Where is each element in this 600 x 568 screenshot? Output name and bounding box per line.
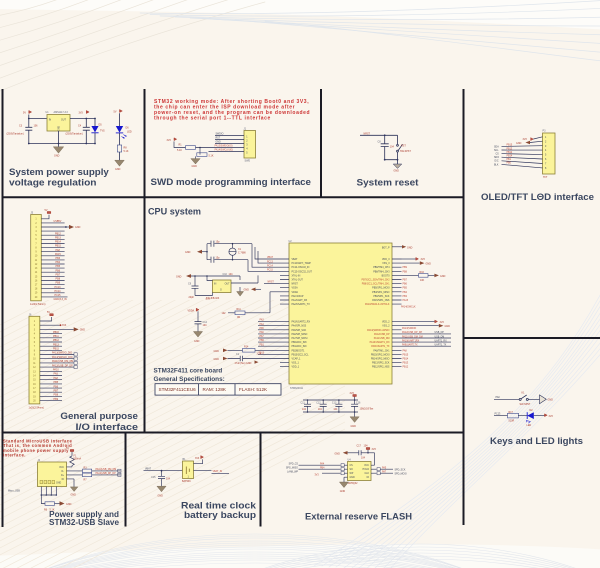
svg-text:510R: 510R (509, 419, 515, 422)
svg-text:PB2/BOOT1: PB2/BOOT1 (292, 350, 306, 352)
svg-text:15p: 15p (216, 256, 221, 259)
svg-text:D5: D5 (99, 124, 103, 127)
svg-text:PB8: PB8 (54, 394, 59, 397)
svg-text:PA14/SWCLK-JWTCLK: PA14/SWCLK-JWTCLK (365, 303, 390, 306)
svg-text:PB15: PB15 (55, 245, 62, 248)
svg-text:CS: CS (496, 154, 500, 156)
svg-text:PB14/SPI2_MISO: PB14/SPI2_MISO (371, 359, 390, 361)
svg-text:PA9: PA9 (54, 373, 59, 376)
svg-text:CS: CS (350, 465, 354, 467)
svg-text:J1: J1 (244, 128, 247, 131)
svg-text:LAN8_WP: LAN8_WP (287, 470, 298, 473)
svg-text:SPG_MISO: SPG_MISO (286, 467, 298, 469)
svg-text:PA5: PA5 (260, 327, 265, 330)
svg-text:PB9/TIM4_CH4: PB9/TIM4_CH4 (373, 267, 390, 269)
svg-text:BOOT0: BOOT0 (382, 275, 391, 277)
svg-text:PA13(SWDIO: PA13(SWDIO (402, 327, 416, 330)
svg-text:104: 104 (302, 408, 307, 411)
svg-text:5V: 5V (47, 311, 50, 314)
svg-text:GND: GND (216, 142, 221, 144)
svg-text:D6: D6 (126, 127, 130, 130)
svg-text:through the serial port 1--TTL: through the serial port 1--TTL interface (154, 116, 271, 122)
svg-text:PC13: PC13 (495, 413, 502, 415)
svg-text:GND: GND (214, 358, 220, 361)
svg-text:PB0: PB0 (507, 163, 512, 165)
svg-text:VCAP_1: VCAP_1 (292, 358, 302, 361)
svg-text:GND: GND (176, 276, 182, 279)
svg-text:20pF: 20pF (189, 296, 195, 299)
svg-text:GND: GND (185, 251, 191, 254)
svg-text:PA11(USB_DM_DM: PA11(USB_DM_DM (52, 360, 73, 363)
svg-text:GND: GND (75, 226, 81, 229)
svg-text:HOLD: HOLD (363, 469, 370, 471)
svg-text:PA15/SPI1_NSS: PA15/SPI1_NSS (372, 299, 390, 302)
svg-text:XTAL-IN: XTAL-IN (292, 274, 301, 277)
svg-text:PB9: PB9 (56, 282, 61, 285)
svg-text:104: 104 (203, 324, 208, 327)
svg-text:NRST: NRST (292, 284, 299, 286)
svg-text:10K: 10K (420, 279, 425, 282)
svg-text:104: 104 (318, 408, 323, 411)
svg-text:PA10: PA10 (53, 369, 59, 372)
svg-text:GND: GND (516, 142, 522, 145)
svg-text:PB9: PB9 (54, 398, 59, 401)
svg-text:STM32-USB Slave: STM32-USB Slave (49, 518, 120, 527)
svg-text:5.1K: 5.1K (177, 149, 182, 152)
svg-text:System reset: System reset (357, 176, 419, 187)
svg-text:USB_DP: USB_DP (435, 332, 445, 334)
svg-text:PA14(SWCLK_DIO: PA14(SWCLK_DIO (52, 356, 73, 359)
svg-text:PB13: PB13 (507, 148, 513, 150)
svg-text:PB14: PB14 (403, 359, 409, 361)
svg-text:U1: U1 (46, 111, 50, 114)
svg-text:C16: C16 (356, 402, 361, 405)
svg-text:PB15: PB15 (53, 348, 60, 351)
svg-text:VDD_2: VDD_2 (382, 322, 390, 324)
svg-text:PA1/UART_RX: PA1/UART_RX (292, 299, 308, 302)
svg-text:C4: C4 (78, 125, 82, 128)
svg-text:GND: GND (351, 425, 357, 428)
svg-text:102: 102 (222, 312, 227, 315)
svg-text:PB10/I2C2_SCL: PB10/I2C2_SCL (292, 354, 310, 356)
svg-text:SDO: SDO (494, 157, 499, 159)
svg-text:PC15: PC15 (267, 270, 274, 272)
svg-text:TFT: TFT (543, 176, 548, 179)
svg-text:PA7: PA7 (382, 470, 387, 473)
svg-text:C12: C12 (316, 402, 321, 405)
svg-text:PB4/SPI1_MISO: PB4/SPI1_MISO (372, 292, 390, 294)
svg-text:BLK: BLK (494, 164, 499, 166)
svg-text:3V3: 3V3 (167, 139, 172, 142)
svg-text:PB5: PB5 (54, 381, 59, 384)
svg-text:voltage regulation: voltage regulation (9, 176, 97, 187)
svg-text:OLED/TFT LΘD interface: OLED/TFT LΘD interface (481, 191, 594, 202)
svg-text:15p: 15p (216, 240, 221, 243)
svg-text:GND: GND (192, 165, 198, 168)
svg-text:PB7/I2C1_SDA/TIM4_CH2: PB7/I2C1_SDA/TIM4_CH2 (362, 279, 391, 282)
svg-text:GND: GND (66, 503, 72, 506)
svg-text:SWD mode programming interface: SWD mode programming interface (151, 176, 312, 187)
svg-text:PA9/USART1_TX: PA9/USART1_TX (371, 345, 390, 348)
svg-text:G: G (220, 290, 222, 292)
svg-text:GND: GND (56, 482, 61, 484)
svg-text:OUT: OUT (225, 284, 230, 286)
svg-text:External reserve FLASH: External reserve FLASH (305, 511, 412, 522)
svg-text:GND: GND (115, 168, 121, 171)
svg-text:R16: R16 (420, 271, 425, 274)
svg-text:PA2/USART1_TX: PA2/USART1_TX (292, 303, 311, 306)
svg-text:PB3: PB3 (403, 296, 408, 298)
svg-text:PA3: PA3 (260, 319, 265, 322)
svg-text:General purpose: General purpose (60, 410, 138, 421)
svg-text:DI: DI (367, 477, 370, 479)
svg-text:ID: ID (62, 479, 65, 481)
svg-text:VSSA: VSSA (292, 287, 299, 290)
svg-text:3V3: 3V3 (549, 415, 554, 418)
svg-text:RST: RST (401, 145, 406, 148)
svg-text:PB4: PB4 (56, 261, 61, 264)
svg-text:PB4: PB4 (320, 467, 325, 469)
svg-text:3V3: 3V3 (62, 324, 67, 327)
svg-text:U2: U2 (289, 240, 293, 243)
svg-text:GND(3.3_IN: GND(3.3_IN (54, 298, 67, 301)
svg-text:LED: LED (127, 131, 132, 134)
svg-text:GND: GND (548, 399, 554, 402)
svg-text:PB7: PB7 (403, 280, 408, 282)
svg-text:interface.: interface. (3, 453, 26, 458)
svg-text:PB10: PB10 (53, 331, 60, 334)
svg-text:PB6: PB6 (403, 284, 408, 286)
svg-text:K1: K1 (522, 392, 526, 395)
svg-text:3.3K: 3.3K (257, 352, 262, 355)
svg-text:晶振JFB.023: 晶振JFB.023 (206, 296, 220, 300)
svg-text:PA11/USB_DM: PA11/USB_DM (374, 337, 390, 340)
svg-text:C8: C8 (378, 141, 382, 144)
svg-text:VSS_3: VSS_3 (382, 263, 390, 265)
svg-text:PB13: PB13 (53, 343, 60, 346)
svg-text:PA8: PA8 (403, 349, 408, 352)
svg-text:SO: SO (350, 469, 354, 471)
svg-text:I/O interface: I/O interface (76, 421, 139, 432)
svg-text:PB4: PB4 (403, 292, 408, 294)
svg-text:PB5/SPI1_MOSI: PB5/SPI1_MOSI (372, 288, 390, 290)
svg-text:PA10/USART1_RX: PA10/USART1_RX (370, 341, 390, 344)
svg-text:PB7: PB7 (56, 274, 61, 277)
svg-text:PB12: PB12 (507, 152, 513, 154)
svg-text:W25Q32: W25Q32 (348, 482, 358, 485)
svg-text:PB3/SPI1_SCK: PB3/SPI1_SCK (373, 296, 390, 298)
svg-text:VSS_2: VSS_2 (382, 326, 390, 328)
svg-text:PA12(USB_DP_DP: PA12(USB_DP_DP (96, 472, 117, 475)
svg-text:PA0-WKUP: PA0-WKUP (292, 295, 304, 298)
svg-text:GND: GND (340, 490, 346, 493)
svg-text:battery backup: battery backup (184, 509, 256, 520)
svg-text:3V3: 3V3 (421, 258, 426, 261)
svg-text:R14: R14 (244, 346, 249, 349)
svg-text:SPD_SCK: SPD_SCK (395, 469, 406, 471)
svg-text:PB13: PB13 (403, 363, 409, 365)
svg-text:PB12: PB12 (55, 232, 62, 235)
svg-text:CPU system: CPU system (148, 205, 201, 216)
svg-text:3V3: 3V3 (350, 392, 355, 395)
svg-text:SDA: SDA (494, 145, 499, 148)
svg-text:IN: IN (49, 120, 52, 122)
svg-text:R11: R11 (237, 308, 242, 311)
svg-text:RST: RST (216, 138, 221, 140)
svg-text:3V3: 3V3 (315, 475, 320, 477)
svg-text:PA4/SPI_NSS: PA4/SPI_NSS (292, 325, 307, 328)
svg-text:GND: GND (426, 263, 432, 266)
svg-text:FLASH: 512K: FLASH: 512K (239, 387, 268, 392)
svg-text:VBAT: VBAT (145, 468, 151, 471)
svg-text:PC15: PC15 (55, 294, 62, 297)
svg-text:PC13: PC13 (267, 261, 274, 263)
svg-text:PA8: PA8 (54, 377, 59, 380)
svg-text:PA5/SPI_SCK: PA5/SPI_SCK (292, 329, 307, 332)
svg-text:BOT_P: BOT_P (382, 248, 390, 250)
svg-text:PA7: PA7 (260, 335, 265, 338)
svg-text:C13: C13 (332, 402, 337, 405)
svg-text:SWDIO: SWDIO (216, 134, 224, 136)
svg-text:PB13/SPI2_SCK: PB13/SPI2_SCK (372, 363, 390, 365)
svg-text:3V3: 3V3 (195, 457, 200, 460)
svg-text:STM32F411: STM32F411 (290, 387, 304, 390)
svg-text:(25V)(Tantalum): (25V)(Tantalum) (66, 133, 83, 136)
svg-text:VBAT: VBAT (267, 256, 273, 259)
svg-text:104: 104 (361, 457, 366, 460)
svg-text:104: 104 (390, 145, 395, 148)
svg-text:C10: C10 (223, 273, 228, 276)
svg-text:GND: GND (244, 289, 250, 292)
svg-text:C9: C9 (188, 282, 192, 285)
svg-text:104: 104 (333, 408, 338, 411)
svg-text:PB12: PB12 (403, 367, 409, 369)
svg-text:1x20(2.54mm): 1x20(2.54mm) (30, 303, 46, 306)
svg-text:PC13/ANTI_TAMP: PC13/ANTI_TAMP (292, 262, 312, 265)
svg-text:PB1: PB1 (507, 159, 512, 161)
svg-text:LED: LED (527, 424, 532, 427)
svg-text:R17: R17 (509, 411, 514, 414)
svg-text:C11: C11 (301, 402, 306, 405)
svg-text:CLK: CLK (364, 473, 369, 475)
svg-text:VSS_1: VSS_1 (292, 363, 300, 365)
svg-text:PB15: PB15 (507, 145, 513, 147)
svg-text:PA13(SWDIO-JWSIO: PA13(SWDIO-JWSIO (367, 329, 390, 332)
svg-text:UART1_TX: UART1_TX (435, 344, 447, 347)
svg-text:GND: GND (407, 247, 413, 250)
svg-text:UART1_RX: UART1_RX (435, 339, 448, 342)
svg-text:5.1K: 5.1K (50, 508, 55, 511)
svg-text:GND: GND (440, 275, 446, 278)
svg-text:PA0: PA0 (496, 396, 501, 399)
svg-text:SWD: SWD (245, 160, 251, 163)
svg-text:(25V)(Tantalum): (25V)(Tantalum) (7, 133, 24, 136)
svg-text:106(10V)Tan: 106(10V)Tan (360, 407, 374, 410)
svg-text:3V3: 3V3 (523, 138, 528, 141)
svg-text:PC14-OSC32_IN: PC14-OSC32_IN (292, 267, 310, 269)
svg-text:47uF(Tan): 47uF(Tan) (235, 362, 246, 365)
svg-text:PA4: PA4 (320, 462, 325, 465)
svg-text:AMS1117-3.3: AMS1117-3.3 (54, 111, 69, 114)
svg-text:GND: GND (394, 170, 400, 173)
svg-text:BAT54C: BAT54C (182, 480, 191, 483)
svg-text:PB14: PB14 (507, 156, 513, 158)
svg-text:5V: 5V (23, 112, 26, 115)
svg-text:D-: D- (62, 471, 65, 473)
svg-text:Keys and LED lights: Keys and LED lights (490, 435, 583, 446)
svg-text:PA7/SPI_MOSI: PA7/SPI_MOSI (292, 337, 308, 340)
svg-text:PC14: PC14 (267, 265, 274, 267)
svg-text:STM32F411CEU6: STM32F411CEU6 (159, 387, 197, 392)
svg-text:GND: GND (335, 452, 341, 455)
svg-text:PB12/SPI2_NSS: PB12/SPI2_NSS (372, 367, 390, 369)
svg-text:0R: 0R (237, 316, 240, 319)
svg-text:PB13: PB13 (55, 236, 62, 239)
svg-text:GND: GND (80, 329, 86, 332)
svg-text:PA15: PA15 (403, 299, 409, 302)
svg-text:VBAT_IN: VBAT_IN (213, 470, 223, 473)
svg-text:VBAT: VBAT (292, 258, 298, 261)
svg-text:J4: J4 (38, 459, 41, 462)
svg-text:TVS: TVS (100, 130, 105, 133)
svg-text:PA6: PA6 (260, 331, 265, 334)
svg-text:General Specifications:: General Specifications: (154, 376, 225, 383)
svg-text:NRST: NRST (364, 132, 371, 135)
svg-text:GND: GND (350, 477, 355, 479)
svg-text:GND: GND (59, 126, 61, 131)
svg-text:PB1/ADC_IN9: PB1/ADC_IN9 (292, 345, 308, 348)
svg-text:106: 106 (34, 125, 39, 128)
svg-text:PA13(SWDIO_DIO: PA13(SWDIO_DIO (52, 352, 72, 355)
svg-text:5.1K: 5.1K (209, 154, 214, 157)
svg-text:GND: GND (54, 155, 60, 158)
svg-text:PB5: PB5 (56, 265, 61, 268)
svg-text:PC15-OSC32_OUT: PC15-OSC32_OUT (292, 271, 313, 273)
svg-text:PB8: PB8 (403, 271, 408, 273)
svg-text:PB14: PB14 (55, 241, 62, 244)
svg-text:PA11(USB_DM_DM: PA11(USB_DM_DM (96, 468, 117, 471)
svg-text:USB_DM: USB_DM (435, 336, 445, 338)
svg-text:STM32F411 core board: STM32F411 core board (154, 367, 223, 374)
svg-text:GND: GND (194, 340, 200, 343)
svg-text:R1: R1 (179, 143, 183, 146)
svg-text:RAM: 128K: RAM: 128K (203, 387, 227, 392)
svg-text:PB6/I2C1_SCL/TIM4_CH1: PB6/I2C1_SCL/TIM4_CH1 (362, 284, 390, 286)
svg-text:PA8/TIM1_CH1: PA8/TIM1_CH1 (373, 349, 390, 352)
svg-text:PA12/USB_DP: PA12/USB_DP (374, 333, 390, 336)
svg-text:PA14(SWCLK: PA14(SWCLK (401, 306, 416, 309)
svg-text:5V: 5V (114, 111, 117, 114)
svg-text:PB8: PB8 (56, 278, 61, 281)
svg-text:PB7: PB7 (54, 389, 59, 392)
svg-text:VDD_1: VDD_1 (292, 367, 300, 369)
svg-text:C17: C17 (357, 445, 362, 448)
svg-text:C 768K: C 768K (238, 251, 246, 254)
svg-text:1x20(2.54mm): 1x20(2.54mm) (29, 406, 45, 409)
svg-text:U4: U4 (348, 459, 352, 462)
svg-text:500mA: 500mA (74, 458, 82, 461)
svg-text:VDD_3: VDD_3 (382, 259, 390, 261)
svg-text:104: 104 (166, 478, 171, 481)
svg-text:3V3: 3V3 (372, 448, 377, 451)
svg-text:VDDA: VDDA (292, 291, 299, 294)
svg-text:GND: GND (71, 493, 77, 496)
svg-text:VDDA: VDDA (188, 310, 195, 313)
svg-text:VCC: VCC (364, 465, 369, 467)
svg-text:PB15: PB15 (403, 354, 409, 356)
svg-text:PB3: PB3 (56, 257, 61, 260)
svg-text:PB6: PB6 (56, 269, 61, 272)
svg-text:PB0/ADC_IN8: PB0/ADC_IN8 (292, 341, 308, 344)
svg-text:NRST: NRST (268, 282, 275, 284)
svg-text:PB5: PB5 (403, 288, 408, 290)
svg-text:SCL: SCL (494, 150, 499, 152)
svg-text:3V3: 3V3 (440, 321, 445, 324)
svg-text:C15: C15 (151, 476, 156, 479)
svg-text:PB15/SPI2_MOSI: PB15/SPI2_MOSI (371, 354, 390, 356)
svg-text:WP: WP (350, 473, 354, 475)
svg-text:5V: 5V (45, 209, 48, 212)
svg-text:SPD_CS: SPD_CS (289, 463, 299, 465)
svg-text:PB6: PB6 (54, 385, 59, 388)
svg-text:Micro_USB: Micro_USB (8, 489, 20, 492)
svg-text:SW-SPST: SW-SPST (520, 403, 531, 406)
svg-text:PB12: PB12 (53, 339, 60, 342)
svg-text:USB5V: USB5V (54, 220, 62, 223)
svg-text:PB9: PB9 (403, 267, 408, 269)
svg-text:R7: R7 (84, 479, 88, 482)
svg-text:J5: J5 (31, 212, 34, 215)
svg-text:104: 104 (229, 273, 234, 276)
svg-text:PA13/SWDIO(IO): PA13/SWDIO(IO) (215, 145, 233, 148)
svg-text:B1: B1 (183, 458, 187, 461)
svg-text:PA5: PA5 (382, 466, 387, 469)
svg-text:5.1K: 5.1K (124, 150, 129, 153)
svg-text:PA14/SWCLK(IO): PA14/SWCLK(IO) (215, 149, 234, 152)
svg-text:PB11: PB11 (53, 335, 59, 338)
svg-text:SW-SPST: SW-SPST (400, 150, 411, 153)
svg-text:XTAL-OUT: XTAL-OUT (292, 279, 304, 282)
svg-text:PA15: PA15 (55, 253, 61, 256)
svg-text:D/C: D/C (495, 161, 499, 163)
svg-text:SPD_MOSI: SPD_MOSI (395, 473, 407, 475)
svg-text:OUT: OUT (61, 120, 66, 122)
svg-text:PA6/SPI_MISO: PA6/SPI_MISO (292, 333, 308, 336)
svg-text:PA4: PA4 (260, 323, 265, 326)
svg-text:PA12(USB_DP_DP: PA12(USB_DP_DP (52, 364, 73, 367)
svg-text:D2: D2 (530, 409, 534, 412)
svg-text:PA8: PA8 (56, 249, 61, 252)
svg-text:GND: GND (214, 350, 220, 353)
svg-text:GND: GND (445, 325, 451, 328)
svg-text:PA3/USART2_RX: PA3/USART2_RX (292, 321, 311, 324)
svg-text:3V3: 3V3 (79, 112, 84, 115)
svg-text:GND: GND (158, 494, 164, 497)
svg-text:GND: GND (246, 362, 252, 365)
svg-text:VCC: VCC (59, 467, 64, 469)
svg-text:PC13: PC13 (55, 286, 62, 289)
svg-text:C3: C3 (19, 125, 23, 128)
svg-text:PC14: PC14 (55, 290, 62, 293)
svg-text:PB8/TIM4_CH3: PB8/TIM4_CH3 (373, 271, 390, 273)
svg-text:IN: IN (214, 284, 217, 286)
svg-text:P3: P3 (543, 130, 547, 133)
